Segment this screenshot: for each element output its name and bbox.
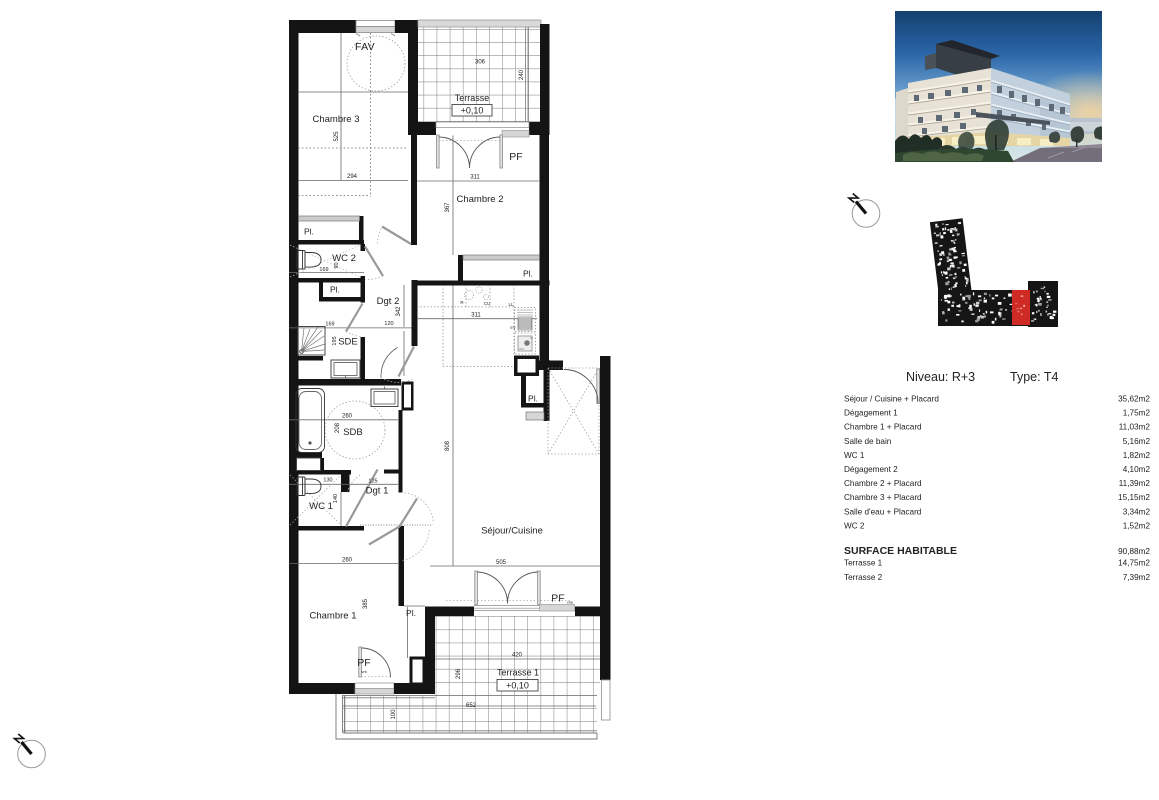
- svg-text:4,10m2: 4,10m2: [1123, 465, 1151, 474]
- svg-text:130: 130: [323, 478, 332, 484]
- svg-text:240: 240: [519, 69, 525, 80]
- svg-text:1,82m2: 1,82m2: [1123, 451, 1151, 460]
- svg-text:14,75m2: 14,75m2: [1118, 559, 1150, 568]
- svg-text:Pl.: Pl.: [304, 227, 314, 237]
- svg-text:Pl.: Pl.: [528, 394, 538, 404]
- svg-text:Terrasse: Terrasse: [455, 93, 490, 103]
- svg-text:5,16m2: 5,16m2: [1123, 437, 1151, 446]
- svg-text:WC 1: WC 1: [844, 451, 865, 460]
- svg-text:296: 296: [456, 668, 462, 679]
- svg-text:169: 169: [325, 322, 334, 328]
- svg-text:EV: EV: [510, 325, 516, 330]
- svg-text:7,39m2: 7,39m2: [1123, 573, 1151, 582]
- svg-text:Dégagement 2: Dégagement 2: [844, 465, 898, 474]
- svg-text:311: 311: [471, 313, 481, 319]
- svg-text:Séjour/Cuisine: Séjour/Cuisine: [481, 526, 543, 537]
- svg-text:140: 140: [333, 494, 339, 503]
- svg-text:Pl.: Pl.: [406, 608, 416, 618]
- svg-text:Pl.: Pl.: [330, 285, 340, 295]
- svg-text:+0,10: +0,10: [461, 106, 484, 116]
- svg-text:311: 311: [470, 175, 480, 181]
- svg-text:11,03m2: 11,03m2: [1119, 423, 1151, 432]
- svg-text:195: 195: [332, 336, 338, 345]
- svg-text:Terrasse 1: Terrasse 1: [844, 559, 883, 568]
- svg-text:90,88m2: 90,88m2: [1118, 547, 1150, 556]
- svg-text:SDB: SDB: [343, 427, 363, 438]
- svg-text:SDE: SDE: [338, 337, 358, 348]
- svg-text:WC 2: WC 2: [332, 253, 356, 264]
- svg-text:652: 652: [466, 703, 477, 709]
- svg-text:Salle d'eau + Placard: Salle d'eau + Placard: [844, 507, 922, 516]
- svg-text:420: 420: [512, 653, 523, 659]
- svg-text:vnt: vnt: [361, 669, 367, 674]
- svg-text:Séjour / Cuisine + Placard: Séjour / Cuisine + Placard: [844, 395, 939, 404]
- svg-text:100: 100: [391, 709, 397, 720]
- svg-text:WC 2: WC 2: [844, 521, 865, 530]
- svg-text:3,34m2: 3,34m2: [1123, 507, 1151, 516]
- svg-text:342: 342: [396, 306, 402, 317]
- svg-text:Salle de bain: Salle de bain: [844, 437, 892, 446]
- svg-text:Terrasse 2: Terrasse 2: [844, 573, 883, 582]
- svg-text:LL: LL: [508, 302, 514, 307]
- svg-text:125: 125: [368, 479, 377, 485]
- svg-text:FAV: FAV: [355, 41, 375, 53]
- svg-text:SURFACE HABITABLE: SURFACE HABITABLE: [844, 545, 957, 557]
- svg-text:Chambre 2: Chambre 2: [457, 194, 504, 205]
- svg-text:Niveau: R+3: Niveau: R+3: [906, 370, 975, 384]
- svg-text:PF: PF: [509, 151, 522, 163]
- svg-text:PF: PF: [551, 593, 564, 605]
- svg-text:90: 90: [334, 262, 340, 268]
- svg-text:525: 525: [334, 131, 340, 142]
- svg-text:260: 260: [342, 558, 353, 564]
- svg-text:808: 808: [445, 440, 451, 451]
- svg-text:+0,10: +0,10: [506, 681, 529, 691]
- svg-text:Dégagement 1: Dégagement 1: [844, 409, 898, 418]
- svg-text:120: 120: [384, 321, 393, 327]
- svg-text:Dgt 2: Dgt 2: [377, 296, 400, 307]
- svg-text:Dgt 1: Dgt 1: [366, 486, 389, 497]
- svg-text:385: 385: [363, 598, 369, 609]
- svg-text:367: 367: [445, 202, 451, 213]
- svg-text:169: 169: [319, 267, 328, 273]
- svg-text:1,52m2: 1,52m2: [1123, 521, 1151, 530]
- svg-text:Chambre 3 + Placard: Chambre 3 + Placard: [844, 493, 922, 502]
- svg-text:WC 1: WC 1: [309, 501, 333, 512]
- svg-text:260: 260: [342, 414, 353, 420]
- svg-text:505: 505: [496, 560, 507, 566]
- svg-text:CU: CU: [484, 301, 491, 306]
- svg-text:Chambre 1 + Placard: Chambre 1 + Placard: [844, 423, 922, 432]
- svg-text:Terrasse 1: Terrasse 1: [497, 668, 539, 678]
- svg-text:Chambre 3: Chambre 3: [313, 114, 360, 125]
- svg-text:Chambre 2 + Placard: Chambre 2 + Placard: [844, 479, 922, 488]
- svg-text:1,75m2: 1,75m2: [1123, 409, 1151, 418]
- svg-text:Chambre 1: Chambre 1: [310, 611, 357, 622]
- svg-text:PF: PF: [357, 657, 370, 669]
- svg-text:294: 294: [347, 174, 358, 180]
- svg-text:11,39m2: 11,39m2: [1119, 479, 1151, 488]
- svg-text:Pl.: Pl.: [523, 269, 533, 279]
- svg-text:15,15m2: 15,15m2: [1118, 493, 1150, 502]
- svg-text:Type: T4: Type: T4: [1010, 370, 1058, 384]
- svg-text:208: 208: [335, 422, 341, 433]
- svg-text:306: 306: [475, 60, 486, 66]
- svg-text:vne: vne: [567, 600, 574, 605]
- svg-text:35,62m2: 35,62m2: [1118, 395, 1150, 404]
